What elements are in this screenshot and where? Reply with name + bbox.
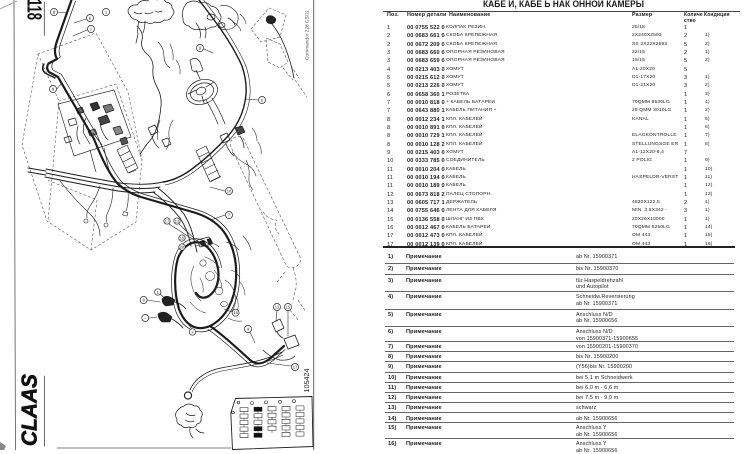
svg-text:16: 16 — [233, 310, 238, 315]
svg-text:17: 17 — [293, 364, 298, 369]
svg-text:15: 15 — [286, 304, 291, 309]
svg-text:CLAAS: CLAAS — [18, 373, 42, 446]
svg-text:105424: 105424 — [304, 368, 311, 392]
svg-text:Commandor 228 CS/11: Commandor 228 CS/11 — [305, 10, 311, 60]
svg-text:13: 13 — [275, 304, 280, 309]
svg-text:17: 17 — [165, 218, 170, 223]
svg-text:20: 20 — [180, 244, 185, 249]
svg-text:12: 12 — [175, 218, 180, 223]
svg-text:15: 15 — [180, 235, 185, 240]
svg-text:10: 10 — [227, 188, 232, 193]
svg-text:118: 118 — [23, 0, 46, 20]
